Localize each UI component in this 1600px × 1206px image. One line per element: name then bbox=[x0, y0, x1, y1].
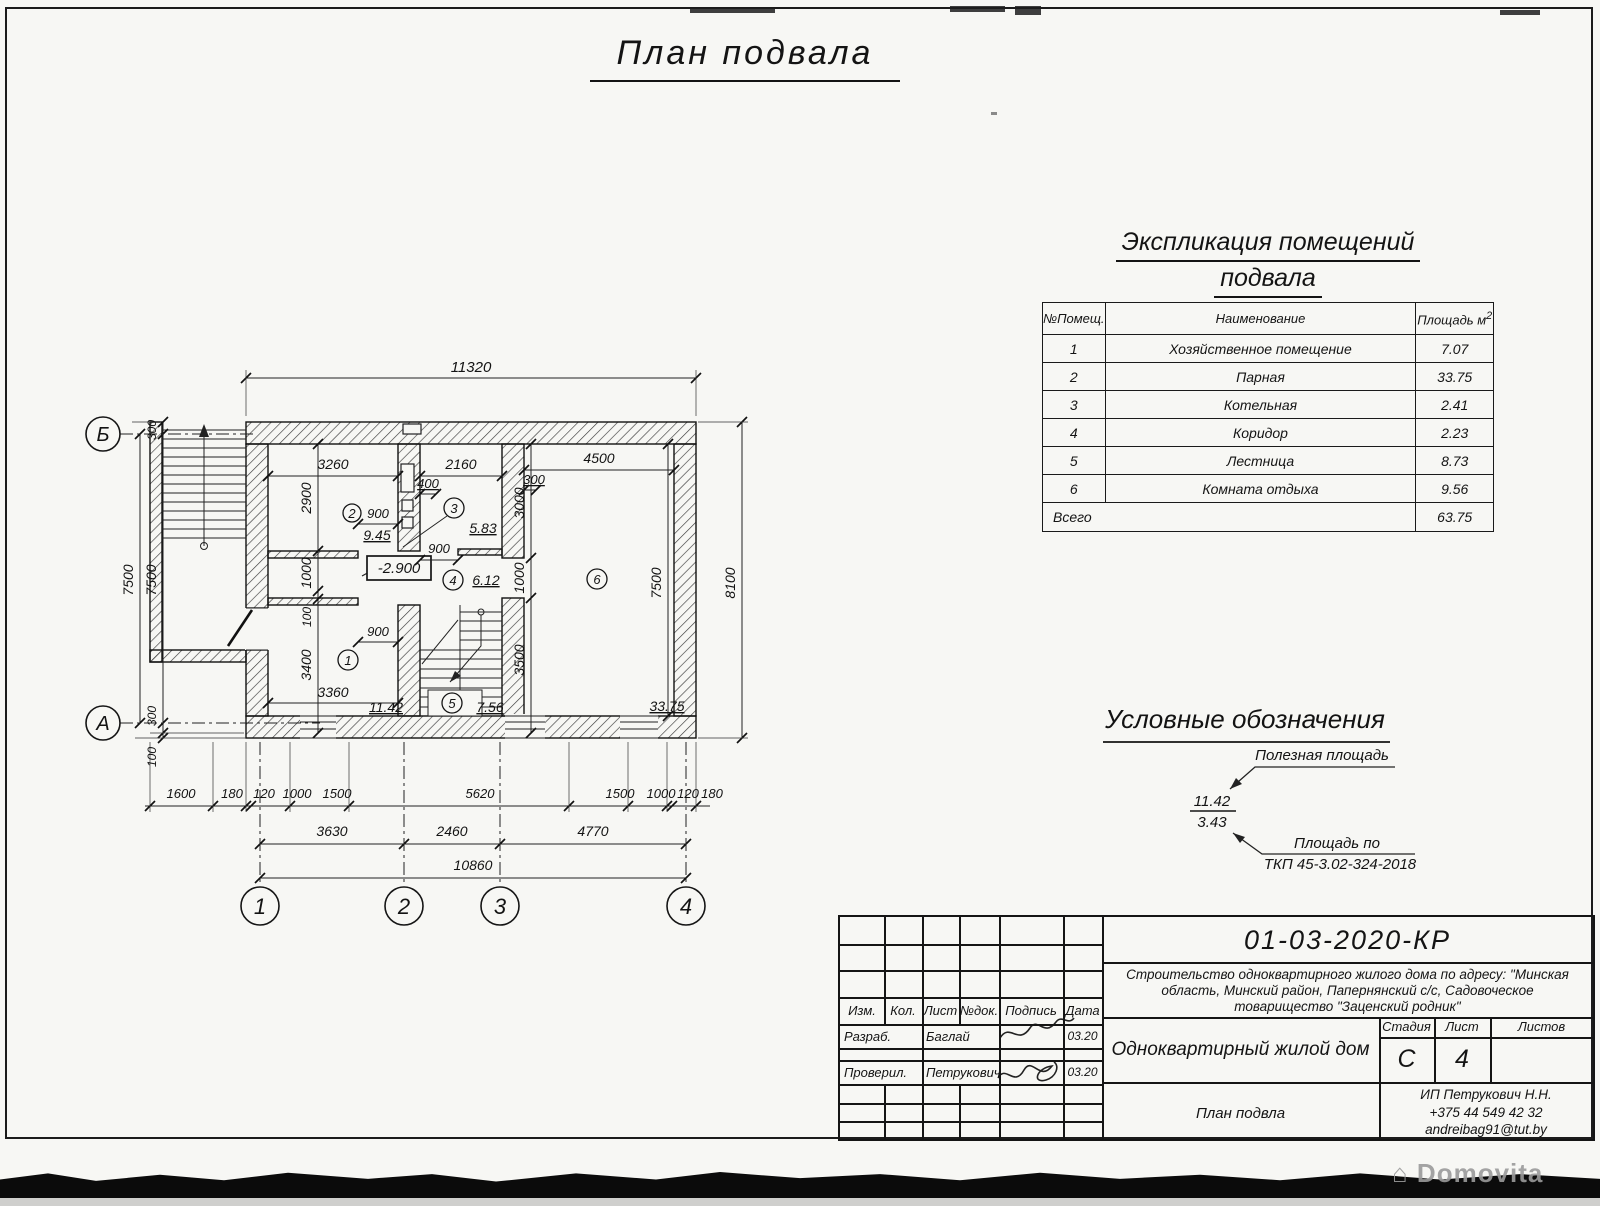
room-area: 5.83 bbox=[469, 520, 496, 536]
dim-text: 5620 bbox=[466, 786, 496, 801]
room-number: 6 bbox=[593, 572, 601, 587]
legend-title: Условные обозначения bbox=[1104, 704, 1385, 734]
tb-drawing-name: План подвла bbox=[1102, 1105, 1379, 1122]
entrance-door bbox=[228, 608, 269, 650]
legend-useful-label: Полезная площадь bbox=[1255, 747, 1389, 764]
tb-col-kol: Кол. bbox=[884, 1003, 922, 1018]
scan-edge-gray bbox=[0, 1198, 1600, 1206]
legend-fraction-top: 11.42 bbox=[1194, 793, 1231, 810]
dim-text: 4770 bbox=[577, 823, 608, 839]
axis-label: 2 bbox=[397, 894, 410, 919]
axis-label: 1 bbox=[254, 894, 266, 919]
stair-arrow-icon bbox=[450, 671, 461, 682]
tb-razrab-name: Баглай bbox=[926, 1029, 999, 1044]
dim-text: 3360 bbox=[317, 684, 348, 700]
tb-company-line2: +375 44 549 42 32 bbox=[1379, 1105, 1593, 1120]
room-number: 4 bbox=[449, 573, 456, 588]
dim-text: 1500 bbox=[323, 786, 353, 801]
arrow-icon bbox=[1233, 833, 1245, 843]
dim-text: 100 bbox=[145, 747, 159, 767]
axis-label: 4 bbox=[680, 894, 692, 919]
tb-razrab-label: Разраб. bbox=[844, 1029, 922, 1044]
axis-label: А bbox=[95, 713, 109, 735]
dim-text: 2900 bbox=[298, 482, 314, 514]
dim-text: 3400 bbox=[298, 649, 314, 680]
axis-label: 3 bbox=[494, 894, 507, 919]
dim-text: 120 bbox=[253, 786, 275, 801]
tb-sheet-value: 4 bbox=[1434, 1045, 1490, 1074]
tb-sheet-label: Лист bbox=[1434, 1019, 1490, 1034]
room-number: 2 bbox=[347, 506, 356, 521]
room-number: 5 bbox=[448, 696, 456, 711]
room-number: 1 bbox=[344, 653, 351, 668]
title-block: Изм. Кол. Лист №док. Подпись Дата Разраб… bbox=[838, 915, 1595, 1141]
dim-text: 7500 bbox=[120, 564, 136, 595]
dim-text: 100 bbox=[300, 607, 314, 627]
dim-text: 300 bbox=[145, 420, 159, 440]
legend: Условные обозначения Полезная площадь 11… bbox=[1103, 704, 1417, 873]
tb-col-podpis: Подпись bbox=[999, 1003, 1063, 1018]
dim-text: 180 bbox=[701, 786, 723, 801]
dim-text: 1000 bbox=[298, 557, 314, 588]
dim-text: 7500 bbox=[143, 564, 159, 595]
dim-text: 3000 bbox=[511, 487, 527, 518]
legend-tkp-line1: Площадь по bbox=[1294, 835, 1380, 852]
dim-text: 900 bbox=[428, 541, 450, 556]
dim-text: 1000 bbox=[283, 786, 313, 801]
tb-object-name: Одноквартирный жилой дом bbox=[1102, 1039, 1379, 1061]
partition-3 bbox=[458, 549, 502, 555]
tb-company-line3: andreibag91@tut.by bbox=[1379, 1122, 1593, 1137]
dim-text: 11320 bbox=[451, 359, 492, 376]
dim-text: 900 bbox=[367, 506, 389, 521]
dim-text: 300 bbox=[145, 706, 159, 726]
tb-proveril-name: Петрукович bbox=[926, 1065, 999, 1080]
dim-text: 2160 bbox=[444, 456, 476, 472]
tb-desc-line3: товарищество "Заценский родник" bbox=[1108, 999, 1587, 1014]
dim-text: 400 bbox=[417, 476, 439, 491]
dim-text: 3500 bbox=[511, 644, 527, 675]
room-area: 7.56 bbox=[476, 699, 503, 715]
dim-text: 1000 bbox=[511, 562, 527, 593]
tb-proveril-label: Проверил. bbox=[844, 1065, 922, 1080]
room-area: 11.42 bbox=[369, 699, 403, 715]
room-number: 3 bbox=[450, 501, 458, 516]
room-area: 6.12 bbox=[472, 572, 499, 588]
tb-col-list: Лист bbox=[922, 1003, 959, 1018]
dim-text: 300 bbox=[523, 472, 545, 487]
vent-icon bbox=[403, 424, 421, 434]
tb-stage-label: Стадия bbox=[1379, 1019, 1434, 1034]
dim-text: 8100 bbox=[722, 567, 738, 598]
watermark: ⌂ Domovita bbox=[1392, 1158, 1543, 1189]
tb-col-ndok: №док. bbox=[959, 1003, 999, 1018]
wall-left-upper bbox=[246, 444, 268, 608]
dimension-lines bbox=[140, 378, 742, 878]
dim-text: 1500 bbox=[606, 786, 636, 801]
tb-sheets-label: Листов bbox=[1490, 1019, 1593, 1034]
dim-text: 2460 bbox=[435, 823, 467, 839]
room-area: 33.75 bbox=[649, 698, 684, 714]
dim-text: 4500 bbox=[583, 450, 614, 466]
exterior-stair bbox=[162, 424, 246, 550]
tb-company-line1: ИП Петрукович Н.Н. bbox=[1379, 1087, 1593, 1102]
dim-text: 10860 bbox=[454, 857, 493, 873]
tb-col-data: Дата bbox=[1063, 1003, 1102, 1018]
drawing-sheet: План подвала Экспликация помещений подва… bbox=[0, 0, 1600, 1206]
dim-text: 900 bbox=[367, 624, 389, 639]
legend-fraction-bottom: 3.43 bbox=[1197, 814, 1227, 831]
dim-text: 120 bbox=[677, 786, 699, 801]
tb-razrab-date: 03.20 bbox=[1063, 1029, 1102, 1043]
tb-proveril-date: 03.20 bbox=[1063, 1065, 1102, 1079]
fixture-icon bbox=[402, 517, 413, 528]
dim-text: 7500 bbox=[648, 567, 664, 598]
axis-label: Б bbox=[96, 424, 109, 446]
tb-col-izm: Изм. bbox=[840, 1003, 884, 1018]
boiler-icon bbox=[401, 464, 414, 492]
legend-tkp-line2: ТКП 45-3.02-324-2018 bbox=[1264, 856, 1417, 873]
fixture-icon bbox=[402, 500, 413, 511]
dim-text: 3630 bbox=[316, 823, 347, 839]
tb-stage-value: С bbox=[1379, 1045, 1434, 1074]
room-area: 9.45 bbox=[363, 527, 390, 543]
dim-text: 3260 bbox=[317, 456, 348, 472]
level-value: -2.900 bbox=[378, 560, 421, 577]
wall-right bbox=[674, 444, 696, 716]
tb-doc-number: 01-03-2020-КР bbox=[1102, 925, 1593, 956]
dim-text: 1600 bbox=[167, 786, 197, 801]
partition-1 bbox=[268, 551, 358, 558]
tb-desc-line2: область, Минский район, Папернянский с/с… bbox=[1108, 983, 1587, 998]
dim-text: 180 bbox=[221, 786, 243, 801]
ext-stair-wall-bottom bbox=[150, 650, 246, 662]
wall-top bbox=[246, 422, 696, 444]
tb-desc-line1: Строительство одноквартирного жилого дом… bbox=[1108, 967, 1587, 982]
dim-text: 1000 bbox=[647, 786, 677, 801]
ext-stair-wall-left bbox=[150, 422, 162, 662]
